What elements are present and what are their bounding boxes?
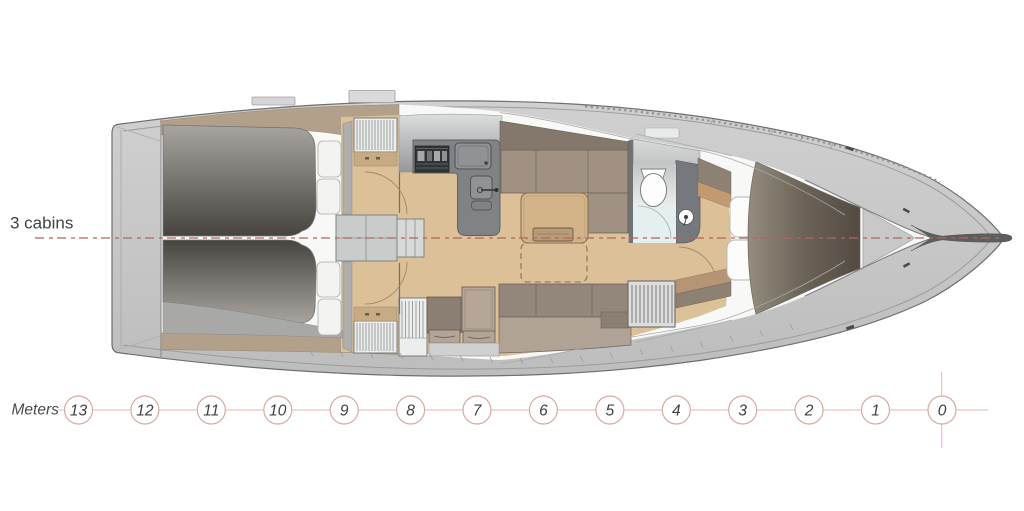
svg-text:0: 0	[938, 403, 947, 420]
svg-text:11: 11	[203, 403, 219, 420]
svg-text:4: 4	[672, 403, 681, 420]
svg-text:13: 13	[70, 403, 88, 420]
svg-text:7: 7	[473, 403, 483, 420]
svg-text:12: 12	[136, 403, 154, 420]
svg-text:3: 3	[738, 403, 747, 420]
svg-text:2: 2	[804, 403, 814, 420]
svg-text:1: 1	[871, 403, 880, 420]
svg-text:Meters: Meters	[12, 402, 60, 419]
svg-text:8: 8	[406, 403, 415, 420]
svg-text:10: 10	[269, 403, 287, 420]
svg-text:9: 9	[340, 403, 349, 420]
svg-text:3 cabins: 3 cabins	[10, 214, 73, 233]
svg-text:5: 5	[606, 403, 615, 420]
svg-text:6: 6	[539, 403, 548, 420]
